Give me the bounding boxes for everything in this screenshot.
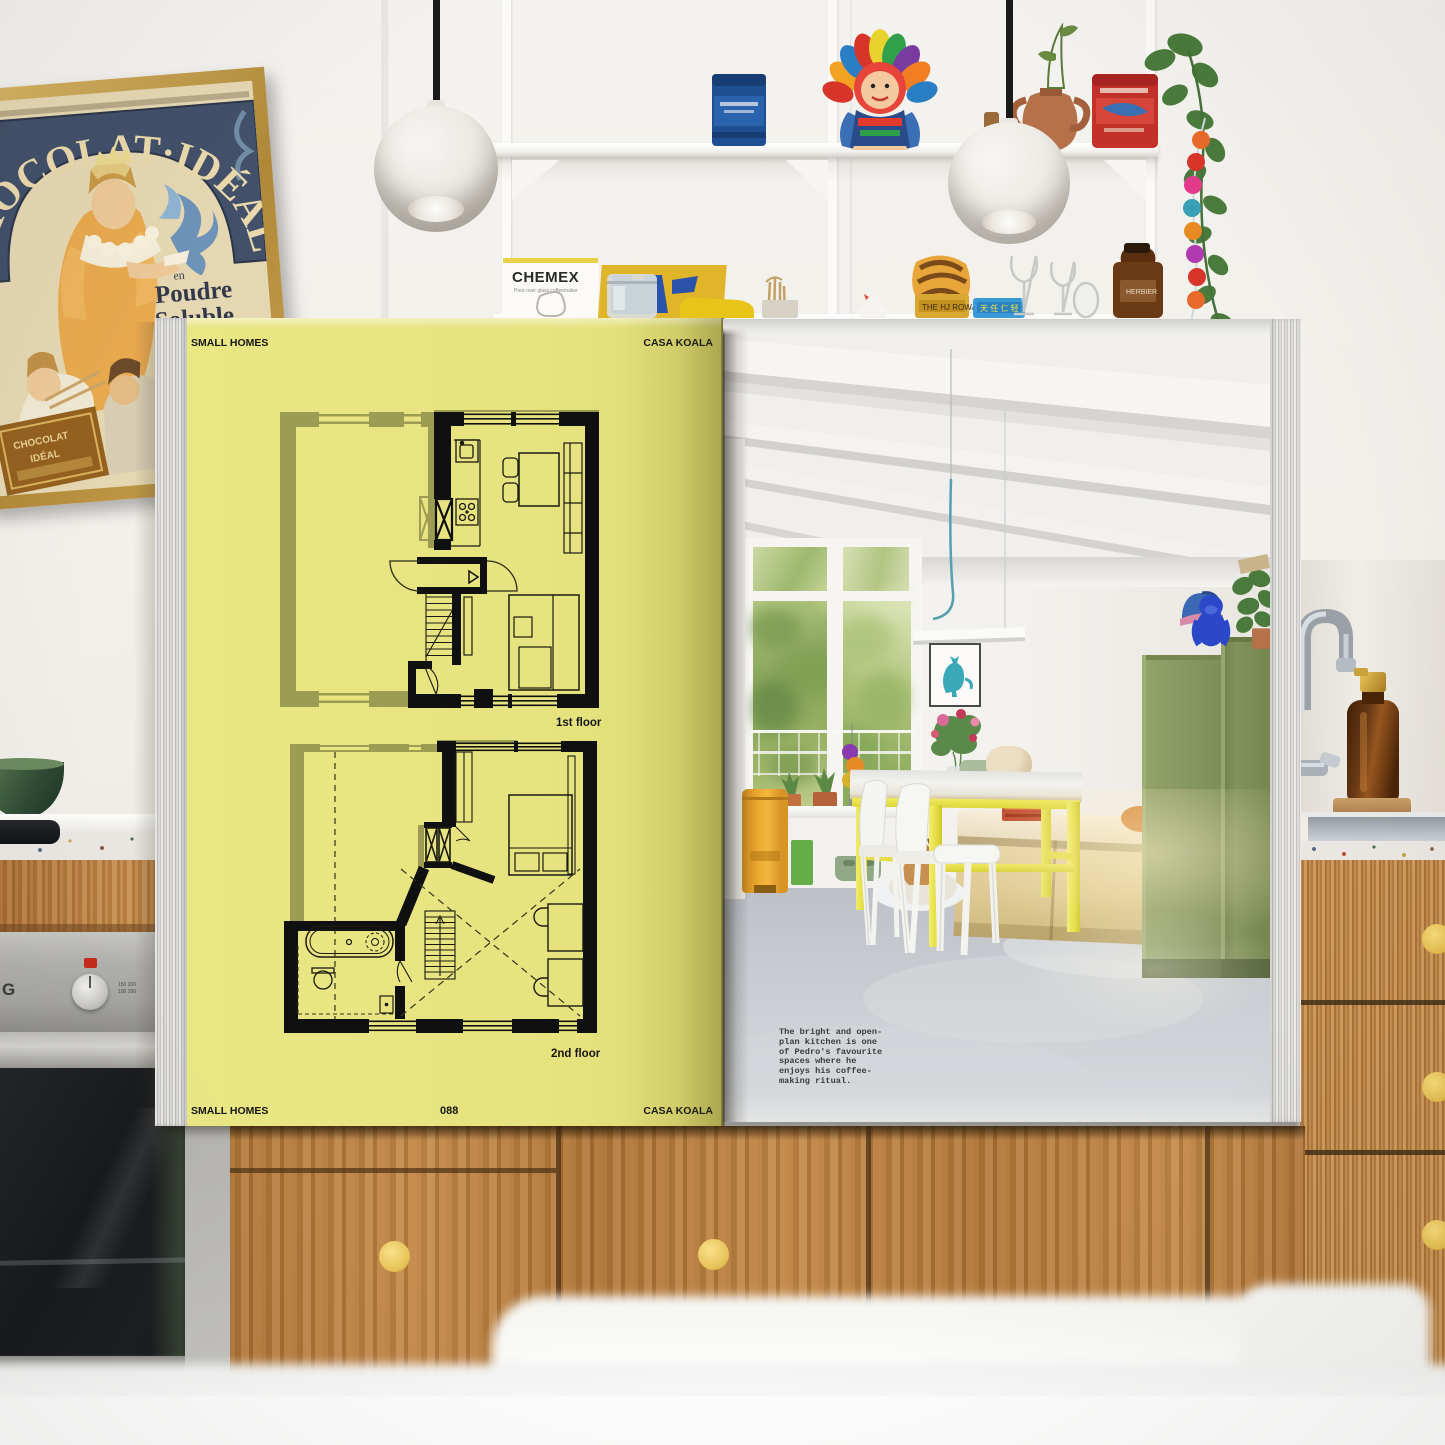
svg-text:THE HJ ROWA: THE HJ ROWA: [922, 303, 977, 312]
svg-text:CHEMEX: CHEMEX: [512, 269, 579, 286]
svg-text:天 任 仁 轻: 天 任 仁 轻: [980, 303, 1019, 313]
svg-text:HERBIER: HERBIER: [1126, 289, 1157, 296]
